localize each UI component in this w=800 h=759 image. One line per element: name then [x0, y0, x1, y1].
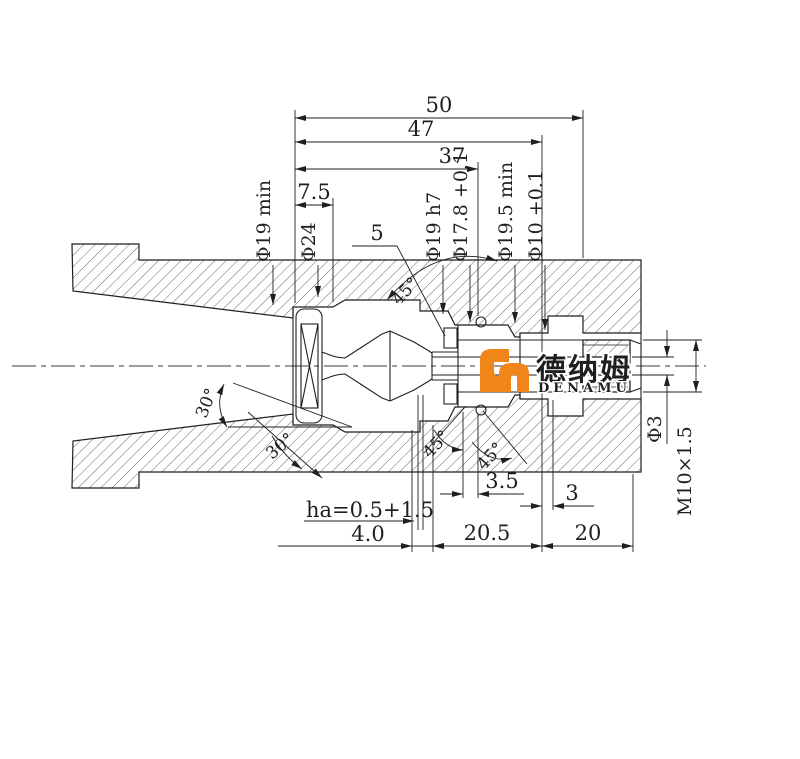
dia-phi19min: Φ19 min — [253, 180, 275, 262]
dim-20-5: 20.5 — [464, 521, 511, 545]
angle-30-upper: 30° — [192, 385, 222, 420]
dim-47: 47 — [408, 117, 435, 141]
dia-phi19h7: Φ19 h7 — [423, 192, 445, 262]
housing-upper-half — [72, 244, 641, 337]
logo-monogram-right — [499, 363, 529, 392]
dim-ha: ha=0.5+1.5 — [306, 498, 434, 522]
logo-latin-text: DENAMU — [538, 381, 631, 396]
dim-m10: M10×1.5 — [674, 426, 696, 516]
dia-phi19-5min: Φ19.5 min — [495, 162, 517, 262]
dim-phi3: Φ3 — [644, 415, 666, 443]
dim-50: 50 — [426, 93, 453, 117]
housing-lower-half — [72, 395, 641, 488]
nozzle-lug-bottom — [444, 384, 457, 404]
dim-4-0: 4.0 — [351, 522, 384, 546]
denamu-logo: 德纳姆 DENAMU — [480, 349, 632, 396]
note-5: 5 — [370, 221, 383, 245]
dia-phi17-8: Φ17.8 +0.1 — [450, 152, 472, 262]
dim-3: 3 — [565, 481, 578, 505]
dia-phi24: Φ24 — [298, 222, 320, 262]
technical-drawing: 50 47 37 7.5 Φ19 min Φ24 5 Φ19 h7 Φ17.8 … — [0, 0, 800, 759]
drawing-sheet: 50 47 37 7.5 Φ19 min Φ24 5 Φ19 h7 Φ17.8 … — [0, 0, 800, 759]
dia-phi10: Φ10 +0.1 — [525, 170, 547, 262]
dim-7-5: 7.5 — [297, 180, 330, 204]
nozzle-lug-top — [444, 328, 457, 348]
dim-3-5: 3.5 — [485, 469, 518, 493]
dim-20: 20 — [575, 521, 602, 545]
